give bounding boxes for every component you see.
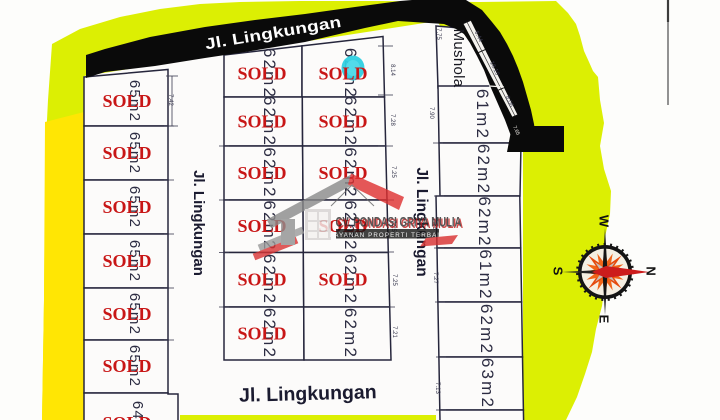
svg-text:7.42: 7.42 — [167, 94, 173, 106]
svg-text:SOLD: SOLD — [102, 91, 151, 111]
svg-text:W: W — [597, 215, 612, 228]
svg-text:Jl. Lingkungan: Jl. Lingkungan — [190, 170, 207, 276]
svg-text:E: E — [597, 315, 612, 324]
svg-text:7.27: 7.27 — [432, 272, 438, 284]
svg-text:SOLD: SOLD — [102, 197, 151, 217]
svg-text:SOLD: SOLD — [318, 270, 367, 290]
svg-text:8.14: 8.14 — [389, 64, 395, 76]
svg-text:7.90: 7.90 — [428, 107, 434, 119]
svg-text:SOLD: SOLD — [102, 304, 151, 324]
svg-text:SOLD: SOLD — [102, 251, 151, 271]
svg-text:SOLD: SOLD — [102, 356, 151, 376]
svg-text:S: S — [551, 267, 566, 276]
svg-text:63m2: 63m2 — [478, 358, 497, 409]
svg-text:SOLD: SOLD — [237, 324, 286, 344]
svg-text:62m2: 62m2 — [341, 308, 360, 359]
svg-text:7.13: 7.13 — [434, 382, 440, 394]
svg-text:61m2: 61m2 — [473, 89, 492, 140]
svg-text:SOLD: SOLD — [237, 112, 286, 132]
svg-text:SOLD: SOLD — [102, 413, 151, 420]
svg-text:7.75: 7.75 — [435, 28, 441, 40]
svg-text:SOLD: SOLD — [237, 163, 286, 183]
svg-text:62m2: 62m2 — [474, 144, 493, 195]
svg-text:N: N — [644, 266, 659, 275]
svg-text:62m2: 62m2 — [477, 304, 496, 355]
svg-text:Jl. Lingkungan: Jl. Lingkungan — [239, 381, 377, 407]
svg-text:Mushola: Mushola — [450, 29, 467, 88]
svg-text:7.21: 7.21 — [391, 326, 397, 338]
svg-text:7.28: 7.28 — [389, 114, 395, 126]
svg-text:SOLD: SOLD — [237, 270, 286, 290]
svg-text:LAYANAN PROPERTI TERBAIK: LAYANAN PROPERTI TERBAIK — [330, 232, 446, 239]
svg-text:CV. PONDASI GRIYA MULIA: CV. PONDASI GRIYA MULIA — [336, 214, 462, 230]
svg-text:7.25: 7.25 — [391, 274, 397, 286]
svg-text:SOLD: SOLD — [237, 64, 286, 84]
svg-text:SOLD: SOLD — [318, 64, 367, 84]
svg-text:SOLD: SOLD — [318, 112, 367, 132]
svg-text:61m2: 61m2 — [476, 249, 495, 300]
svg-text:SOLD: SOLD — [102, 143, 151, 163]
svg-text:7.25: 7.25 — [390, 166, 396, 178]
svg-text:62m2: 62m2 — [475, 196, 494, 247]
